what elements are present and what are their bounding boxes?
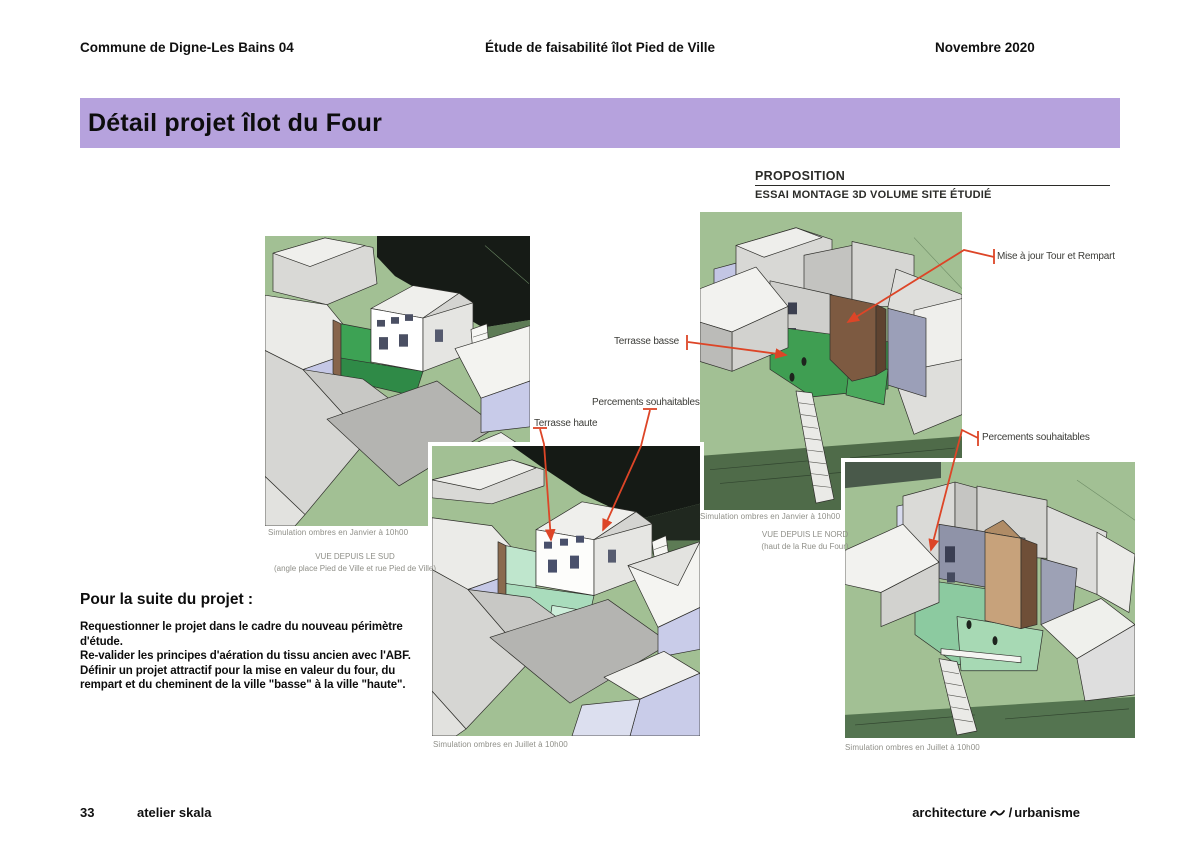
tagline-urbanisme: urbanisme (1014, 805, 1080, 820)
wave-icon (990, 808, 1006, 818)
title-banner: Détail projet îlot du Four (80, 98, 1120, 148)
view-south-title: VUE DEPUIS LE SUD (270, 551, 440, 563)
document-page: Commune de Digne-Les Bains 04 Étude de f… (0, 0, 1200, 848)
annotation-terrasse-basse: Terrasse basse (614, 336, 679, 347)
view-north-title: VUE DEPUIS LE NORD (730, 529, 880, 541)
annotation-terrasse-haute: Terrasse haute (534, 418, 597, 429)
figure-3d-north-july (845, 462, 1135, 738)
tagline-slash: / (1009, 805, 1013, 820)
caption-north-july: Simulation ombres en Juillet à 10h00 (845, 743, 980, 752)
view-north-subtitle: (haut de la Rue du Four) (730, 541, 880, 553)
caption-view-north: VUE DEPUIS LE NORD (haut de la Rue du Fo… (730, 529, 880, 554)
page-title: Détail projet îlot du Four (88, 109, 382, 138)
annotation-percements-right: Percements souhaitables (982, 432, 1090, 443)
view-south-subtitle: (angle place Pied de Ville et rue Pied d… (270, 563, 440, 575)
next-steps-paragraph: Requestionner le projet dans le cadre du… (80, 620, 414, 693)
caption-south-july: Simulation ombres en Juillet à 10h00 (433, 740, 568, 749)
proposition-rule (755, 185, 1110, 186)
annotation-mise-a-jour: Mise à jour Tour et Rempart (997, 251, 1115, 262)
studio-tagline: architecture / urbanisme (912, 805, 1080, 820)
header-date: Novembre 2020 (935, 40, 1035, 55)
caption-south-january: Simulation ombres en Janvier à 10h00 (268, 528, 408, 537)
3d-render-south-july (432, 446, 700, 736)
tagline-architecture: architecture (912, 805, 986, 820)
next-steps-item: Requestionner le projet dans le cadre du… (80, 620, 414, 649)
figure-3d-south-july (432, 446, 700, 736)
next-steps-item: Définir un projet attractif pour la mise… (80, 664, 414, 693)
3d-render-north-july (845, 462, 1135, 738)
page-number: 33 (80, 805, 94, 820)
studio-name: atelier skala (137, 805, 211, 820)
next-steps-heading: Pour la suite du projet : (80, 591, 253, 609)
proposition-block: PROPOSITION ESSAI MONTAGE 3D VOLUME SITE… (755, 169, 1110, 201)
proposition-heading: PROPOSITION (755, 169, 1110, 183)
next-steps-item: Re-valider les principes d'aération du t… (80, 649, 414, 664)
proposition-subheading: ESSAI MONTAGE 3D VOLUME SITE ÉTUDIÉ (755, 189, 1110, 201)
caption-view-south: VUE DEPUIS LE SUD (angle place Pied de V… (270, 551, 440, 576)
annotation-percements-left: Percements souhaitables (592, 397, 700, 408)
caption-north-january: Simulation ombres en Janvier à 10h00 (700, 512, 840, 521)
